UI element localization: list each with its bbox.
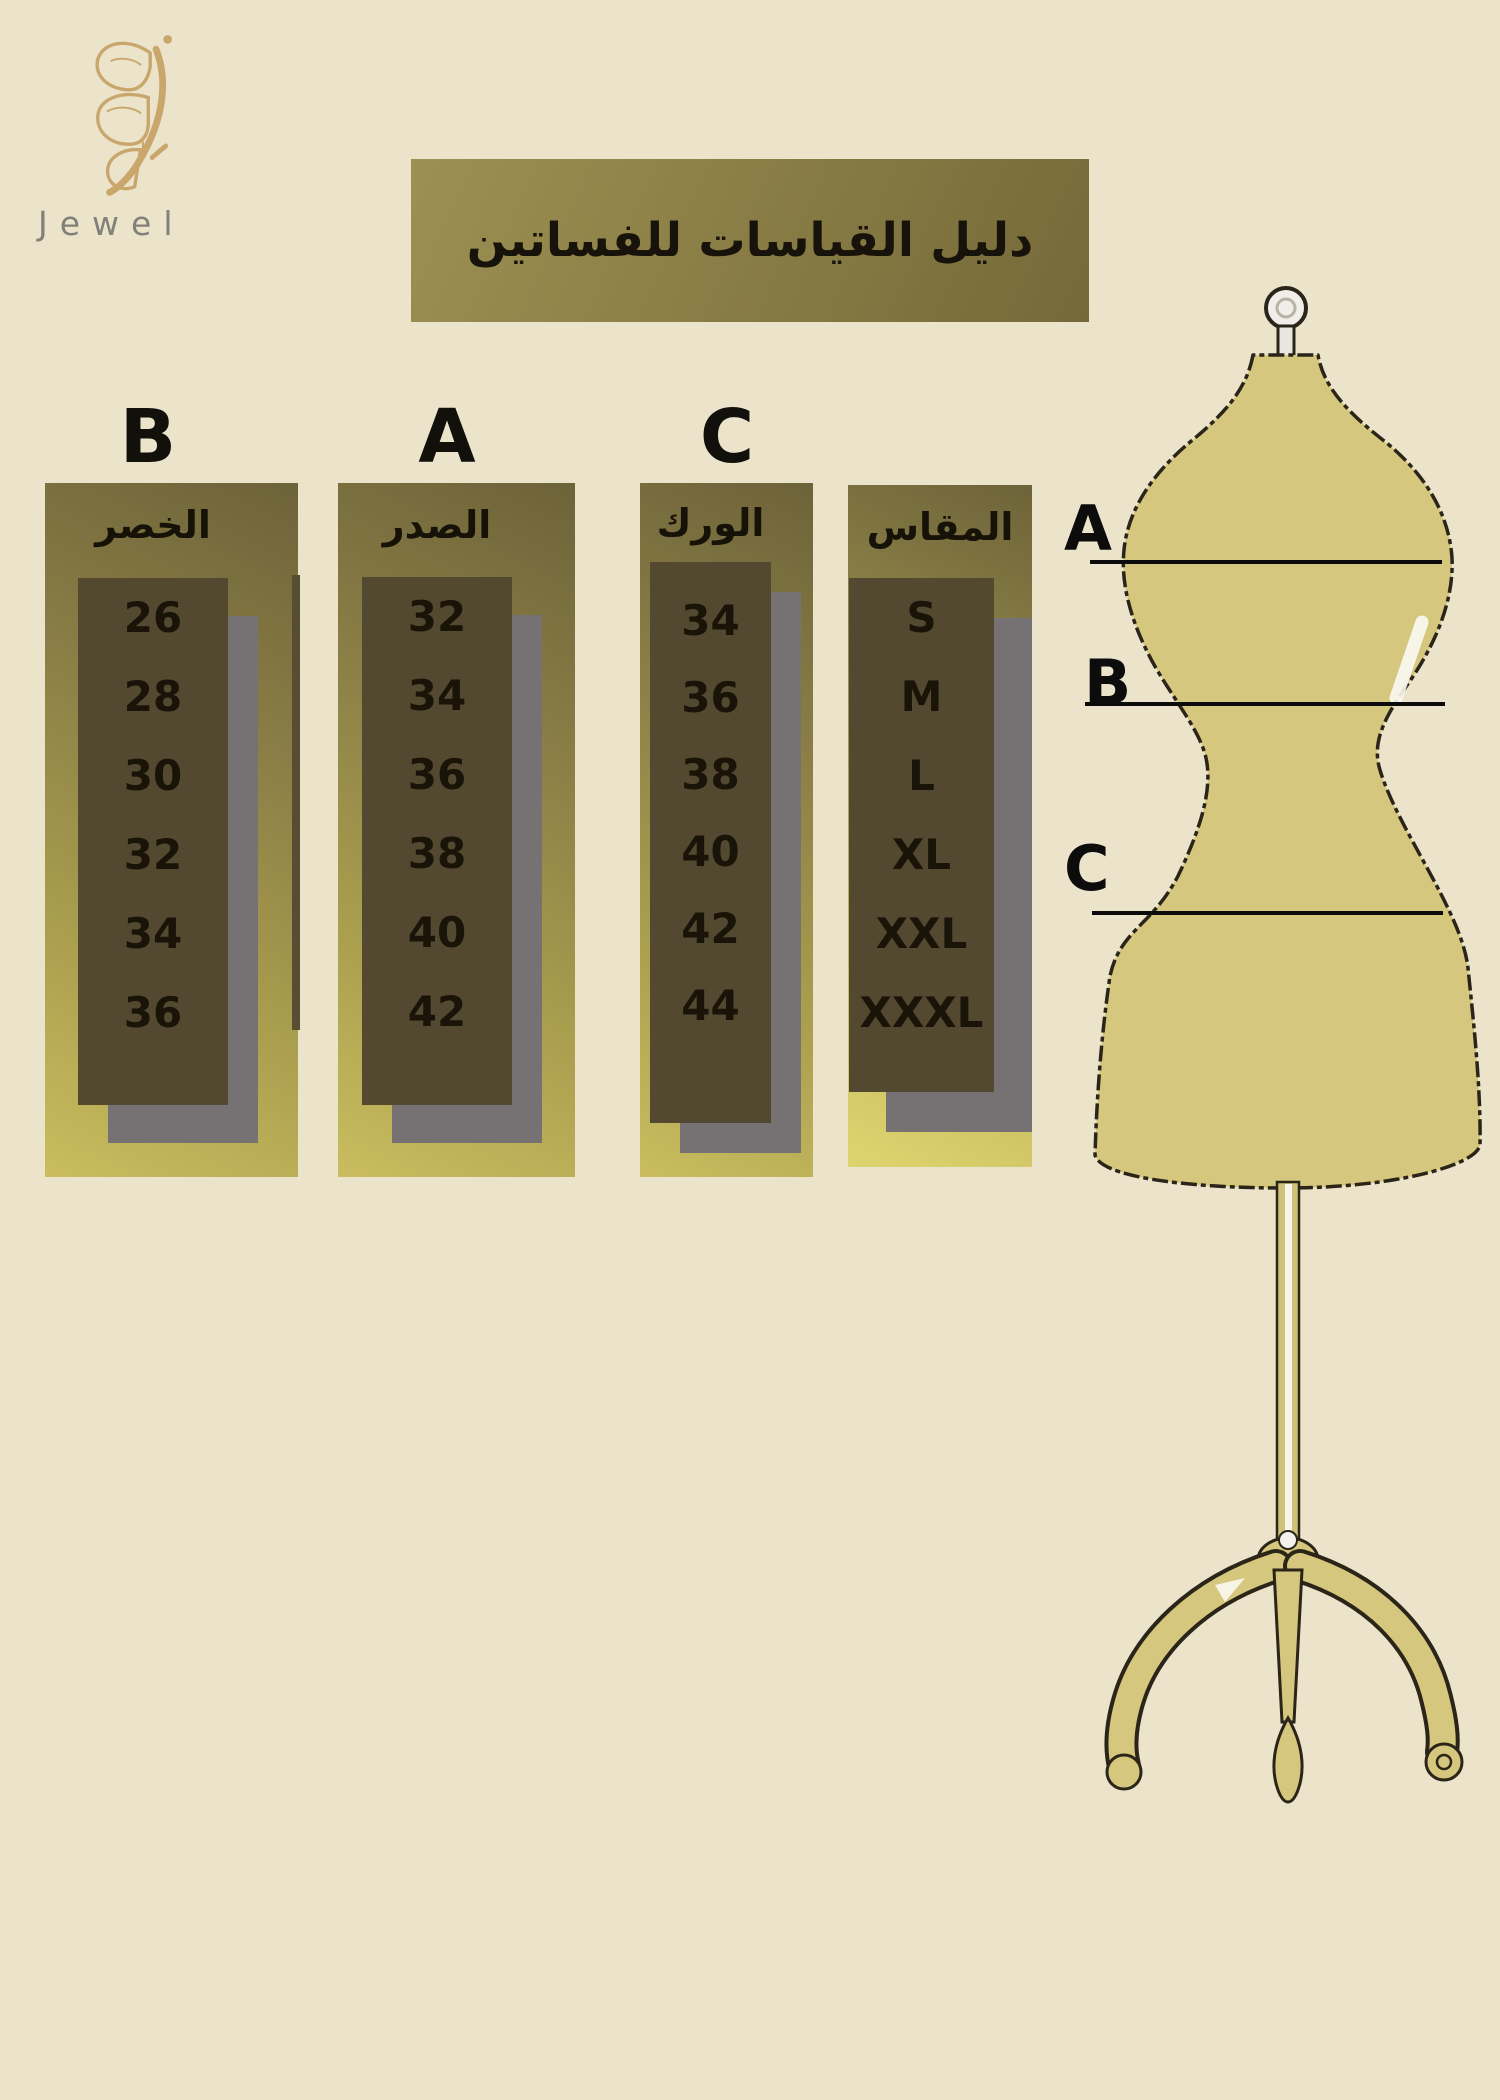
bust-value: 34 (362, 656, 512, 735)
waist-value: 34 (78, 894, 228, 973)
hip-value: 40 (650, 813, 771, 890)
size-value: L (849, 736, 994, 815)
hip-value: 38 (650, 736, 771, 813)
size-column-panel: المقاس S M L XL XXL XXXL (848, 485, 1032, 1167)
bust-column-header: الصدر (338, 503, 536, 547)
bust-value: 32 (362, 577, 512, 656)
measure-line-b (1085, 702, 1445, 706)
measure-label-c: C (1064, 838, 1110, 900)
size-value: XXXL (849, 973, 994, 1052)
bust-value: 38 (362, 814, 512, 893)
measure-line-a (1090, 560, 1442, 564)
size-column-header: المقاس (848, 505, 1032, 549)
waist-value: 32 (78, 815, 228, 894)
size-value: XL (849, 815, 994, 894)
measure-label-a: A (1064, 498, 1112, 560)
brand-name: Jewel (38, 204, 238, 243)
bust-value: 40 (362, 893, 512, 972)
hip-value: 34 (650, 582, 771, 659)
waist-value: 28 (78, 657, 228, 736)
waist-column-header: الخصر (45, 503, 261, 547)
hip-value: 42 (650, 890, 771, 967)
size-value: M (849, 657, 994, 736)
panel-edge-strip (292, 575, 300, 1030)
bust-value: 36 (362, 735, 512, 814)
hip-values-list: 34 36 38 40 42 44 (650, 562, 771, 1123)
page-title: دليل القياسات للفساتين (467, 213, 1033, 268)
size-value: XXL (849, 894, 994, 973)
measure-line-c (1092, 911, 1443, 915)
tripod-legs (1107, 1566, 1462, 1802)
hip-column-header: الورك (640, 501, 781, 545)
bust-values-list: 32 34 36 38 40 42 (362, 577, 512, 1105)
finial-knob-icon (1266, 288, 1306, 328)
column-letter-c: C (700, 400, 754, 474)
hip-value: 36 (650, 659, 771, 736)
size-value: S (849, 578, 994, 657)
torso-silhouette (1095, 355, 1480, 1188)
hip-column-panel: الورك 34 36 38 40 42 44 (640, 483, 813, 1177)
waist-value: 30 (78, 736, 228, 815)
title-banner: دليل القياسات للفساتين (411, 159, 1089, 322)
column-letter-a: A (418, 400, 475, 474)
waist-values-list: 26 28 30 32 34 36 (78, 578, 228, 1105)
column-letter-b: B (120, 400, 176, 474)
bust-column-panel: الصدر 32 34 36 38 40 42 (338, 483, 575, 1177)
waist-column-panel: الخصر 26 28 30 32 34 36 (45, 483, 298, 1177)
bust-value: 42 (362, 972, 512, 1051)
jewel-logo-icon (42, 22, 210, 206)
size-values-list: S M L XL XXL XXXL (849, 578, 994, 1092)
waist-value: 26 (78, 578, 228, 657)
size-guide-page: Jewel دليل القياسات للفساتين B A C الخصر… (0, 0, 1500, 2100)
hip-value: 44 (650, 967, 771, 1044)
waist-value: 36 (78, 973, 228, 1052)
